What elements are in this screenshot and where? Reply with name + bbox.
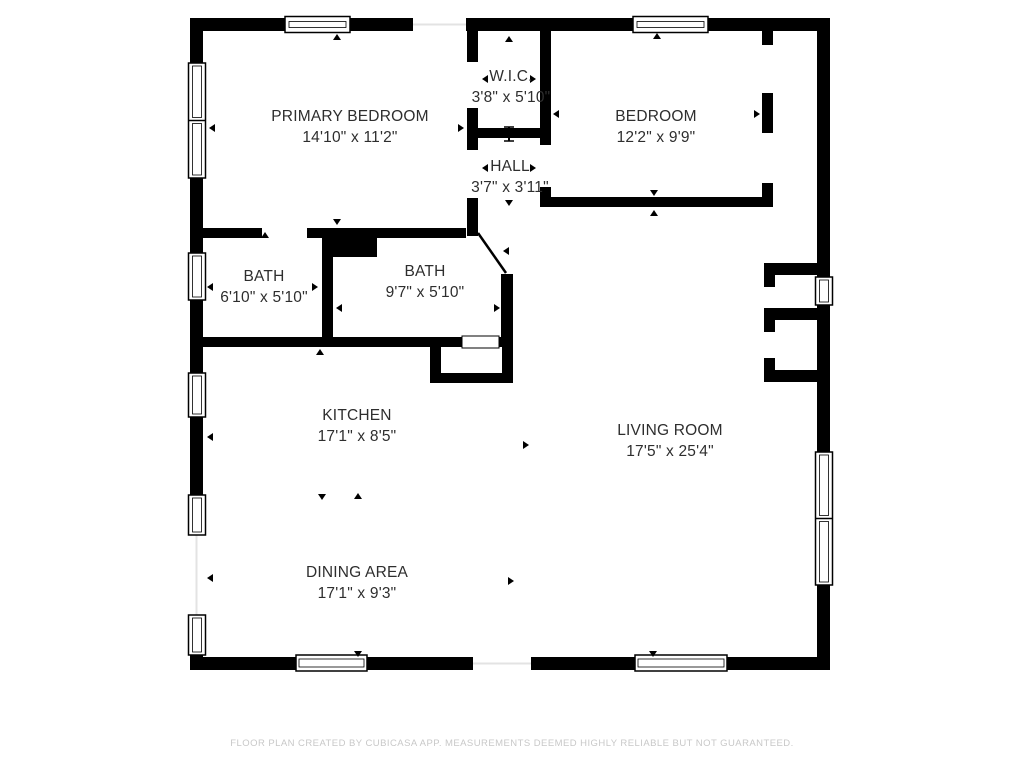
dimension-arrow-down xyxy=(318,494,326,500)
dimension-arrow-right xyxy=(494,304,500,312)
window-icon xyxy=(285,17,350,33)
dimension-arrow-right xyxy=(754,110,760,118)
room-dimensions: 17'1" x 9'3" xyxy=(306,583,408,604)
dimension-arrow-left xyxy=(553,110,559,118)
room-dimensions: 9'7" x 5'10" xyxy=(386,282,465,303)
window-icon xyxy=(189,495,206,535)
dimension-arrow-right xyxy=(458,124,464,132)
window-icon xyxy=(635,655,727,671)
floor-plan-page: PRIMARY BEDROOM 14'10" x 11'2" W.I.C. 3'… xyxy=(0,0,1024,768)
window-icon xyxy=(189,63,206,178)
dimension-arrow-left xyxy=(209,124,215,132)
dimension-arrow-up xyxy=(650,210,658,216)
room-label-dining-area: DINING AREA 17'1" x 9'3" xyxy=(306,562,408,604)
dimension-arrow-down xyxy=(505,200,513,206)
diagonal-wall xyxy=(478,233,506,273)
room-name: BEDROOM xyxy=(615,106,697,127)
window-icon xyxy=(816,277,833,305)
window-icon xyxy=(189,615,206,655)
dimension-arrow-right xyxy=(312,283,318,291)
room-label-primary-bedroom: PRIMARY BEDROOM 14'10" x 11'2" xyxy=(271,106,428,148)
floor-plan-drawing xyxy=(0,0,1024,768)
room-name: KITCHEN xyxy=(318,405,397,426)
room-name: W.I.C. xyxy=(472,66,551,87)
room-dimensions: 3'7" x 3'11" xyxy=(471,177,549,198)
room-dimensions: 3'8" x 5'10" xyxy=(472,87,551,108)
room-dimensions: 14'10" x 11'2" xyxy=(271,127,428,148)
room-label-bedroom: BEDROOM 12'2" x 9'9" xyxy=(615,106,697,148)
dimension-arrow-down xyxy=(333,219,341,225)
room-name: BATH xyxy=(386,261,465,282)
window-icon xyxy=(296,655,367,671)
dimension-arrow-up xyxy=(316,349,324,355)
room-dimensions: 6'10" x 5'10" xyxy=(220,287,308,308)
window-icon xyxy=(189,373,206,417)
room-label-living-room: LIVING ROOM 17'5" x 25'4" xyxy=(617,420,723,462)
room-name: DINING AREA xyxy=(306,562,408,583)
dimension-arrow-left xyxy=(207,283,213,291)
room-name: LIVING ROOM xyxy=(617,420,723,441)
room-label-bath-ensuite: BATH 6'10" x 5'10" xyxy=(220,266,308,308)
room-label-hall: HALL 3'7" x 3'11" xyxy=(471,156,549,198)
sliding-door-icon xyxy=(462,336,499,348)
room-name: HALL xyxy=(471,156,549,177)
window-icon xyxy=(189,253,206,300)
dimension-arrow-down xyxy=(650,190,658,196)
window-icon xyxy=(633,17,708,33)
room-label-wic: W.I.C. 3'8" x 5'10" xyxy=(472,66,551,108)
dimension-arrow-up xyxy=(653,33,661,39)
footer-disclaimer: FLOOR PLAN CREATED BY CUBICASA APP. MEAS… xyxy=(230,738,793,749)
room-name: PRIMARY BEDROOM xyxy=(271,106,428,127)
dimension-arrow-left xyxy=(207,433,213,441)
room-dimensions: 12'2" x 9'9" xyxy=(615,127,697,148)
room-label-kitchen: KITCHEN 17'1" x 8'5" xyxy=(318,405,397,447)
window-icon xyxy=(816,452,833,585)
dimension-arrow-up xyxy=(261,232,269,238)
dimension-arrow-right xyxy=(523,441,529,449)
dimension-arrow-up xyxy=(333,34,341,40)
room-dimensions: 17'1" x 8'5" xyxy=(318,426,397,447)
room-name: BATH xyxy=(220,266,308,287)
dimension-arrow-right xyxy=(508,577,514,585)
room-dimensions: 17'5" x 25'4" xyxy=(617,441,723,462)
dimension-arrow-left xyxy=(207,574,213,582)
dimension-arrow-up xyxy=(354,493,362,499)
dimension-arrow-up xyxy=(505,36,513,42)
dimension-arrow-left xyxy=(503,247,509,255)
dimension-arrow-left xyxy=(336,304,342,312)
room-label-bath-main: BATH 9'7" x 5'10" xyxy=(386,261,465,303)
